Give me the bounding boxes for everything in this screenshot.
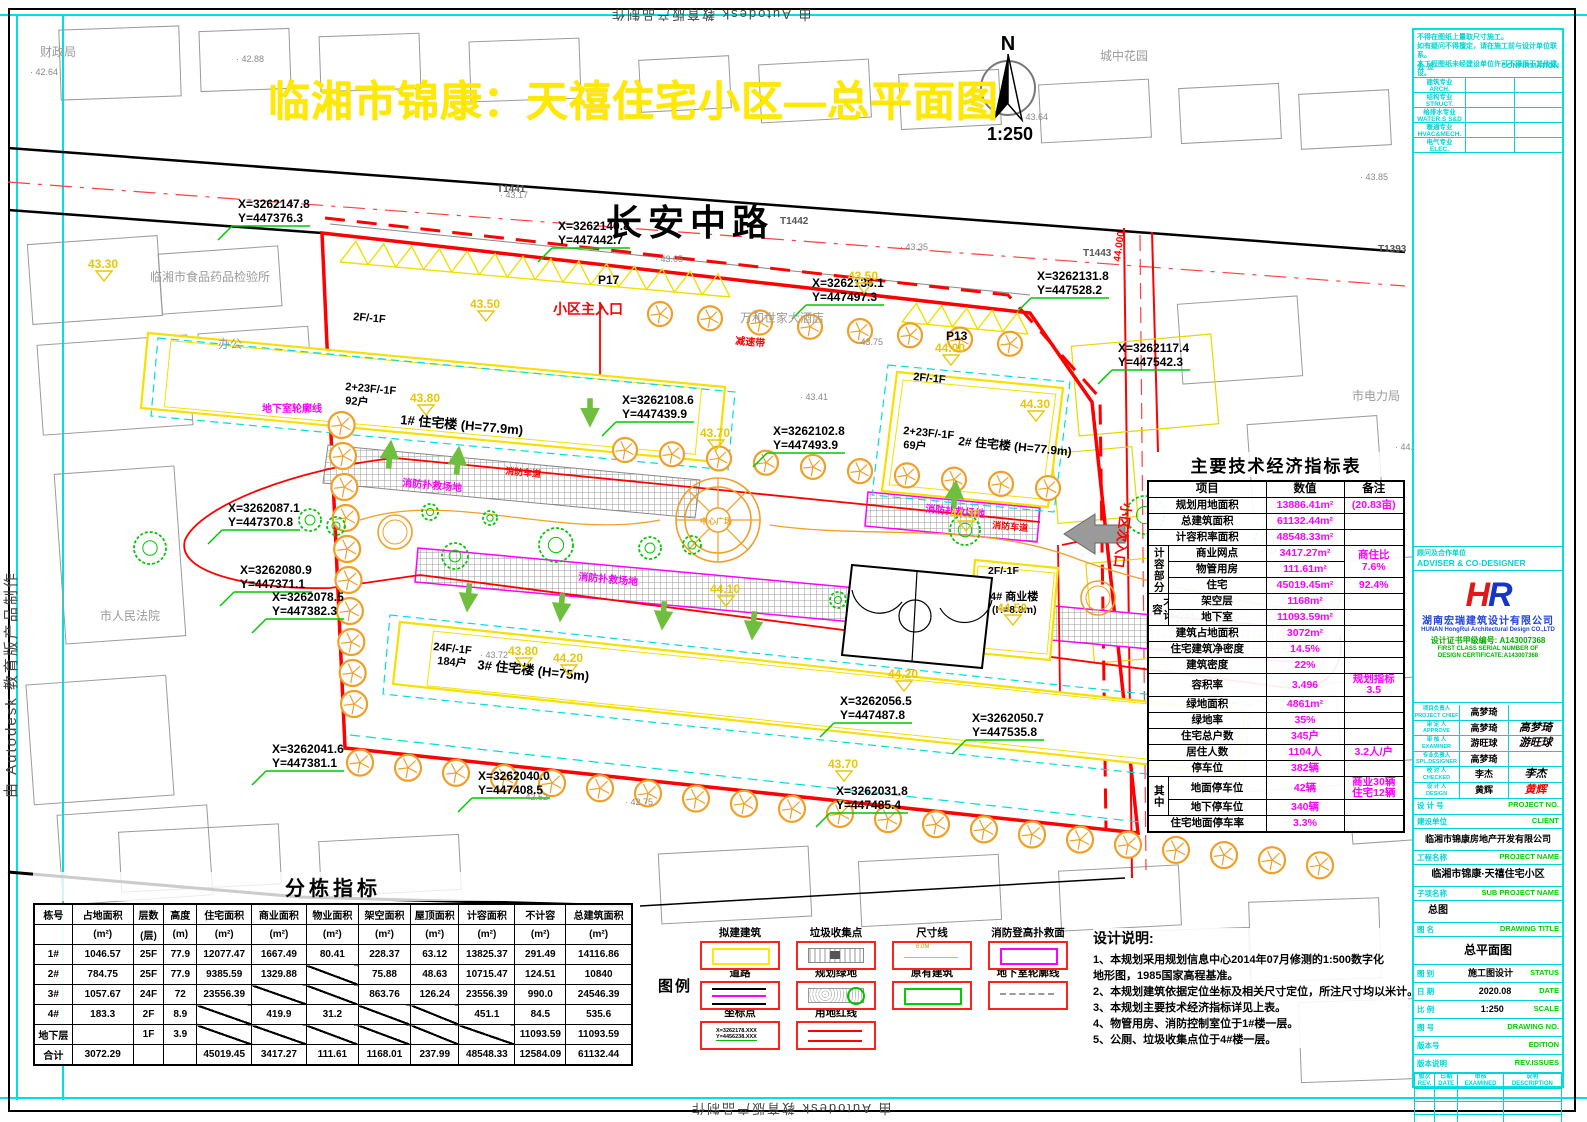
rev-en: EXAMINED — [1458, 1081, 1502, 1088]
legend-item-label: 拟建建筑 — [692, 925, 788, 940]
table-header-row: 栋号占地面积层数高度住宅面积商业面积物业面积架空面积屋顶面积计容面积不计容总建筑… — [34, 904, 632, 925]
signature: 游旺球 — [1509, 736, 1562, 751]
drawing-title: 图 名DRAWING TITLE — [1414, 923, 1562, 937]
table-cell: 124.51 — [515, 965, 566, 985]
tree-icon — [1019, 822, 1045, 848]
economic-table-title: 主要技术经济指标表 — [1147, 452, 1405, 477]
rev-en: REV. — [1415, 1081, 1434, 1088]
table-cell: 1F — [133, 1025, 164, 1045]
drawing-no-value — [1451, 1019, 1507, 1036]
drawing-no: 图 号DRAWING NO. — [1414, 1019, 1562, 1037]
green-tree-crown — [683, 536, 701, 554]
table-cell: 9385.59 — [197, 965, 252, 985]
table-cell: 61132.44m² — [1266, 514, 1344, 530]
tree-icon — [1307, 852, 1333, 878]
tree-icon — [998, 332, 1022, 356]
coordinate-y: Y=447371.1 — [240, 577, 305, 591]
revision-empty-cell — [1435, 1089, 1458, 1102]
legend-swatch-box: 6.0M — [892, 941, 972, 970]
legend-item-label: 垃圾收集点 — [788, 925, 884, 940]
column-unit: (m²) — [515, 925, 566, 945]
green-tree-core — [548, 537, 563, 552]
table-cell: 13825.37 — [459, 945, 515, 965]
column-unit: (m²) — [252, 925, 307, 945]
table-cell: 项目 — [1148, 481, 1266, 498]
table-cell: 2F — [133, 1005, 164, 1025]
elevation-value: 43.50 — [470, 297, 500, 311]
rev-zh: 日期 — [1435, 1074, 1457, 1081]
table-cell: 建筑密度 — [1148, 658, 1266, 674]
table-cell: 1057.67 — [72, 985, 133, 1005]
parking-zigzag — [340, 241, 730, 297]
revision-empty-cell — [1415, 1102, 1435, 1115]
coordinate-callout: X=3262040.0Y=447408.5 — [458, 769, 550, 812]
coordinate-x: X=3262108.6 — [622, 393, 694, 407]
tree-icon — [923, 811, 949, 837]
economic-indicators-table: 项目数值备注规划用地面积13886.41m²(20.83亩)总建筑面积61132… — [1147, 480, 1405, 833]
table-cell: 22% — [1266, 658, 1344, 674]
table-cell: 物管用房 — [1168, 562, 1266, 578]
discipline-sign-cell — [1466, 78, 1515, 92]
tree-icon — [648, 302, 672, 326]
column-header: 占地面积 — [72, 904, 133, 925]
table-cell: 住宅总户数 — [1148, 729, 1266, 745]
table-cell: 合计 — [34, 1045, 72, 1066]
table-cell: 126.24 — [411, 985, 459, 1005]
elevation-triangle — [836, 771, 852, 781]
elevation-marker: 44.00 — [935, 341, 965, 365]
surrounding-label: 临湘市食品药品检验所 — [150, 269, 270, 284]
table-cell: 80.41 — [306, 945, 358, 965]
road-mark-label: T1443 — [1083, 248, 1112, 259]
elevation-value: 44.30 — [950, 507, 980, 521]
elevation-value: 44.00 — [935, 341, 965, 355]
client-value: 临湘市锦康房地产开发有限公司 — [1414, 829, 1562, 851]
spot-elevation: · 42.64 — [30, 67, 58, 77]
table-cell: 商住比 7.6% — [1344, 546, 1404, 578]
main-entrance-label: 小区主入口 — [553, 301, 623, 317]
boundary-line — [640, 878, 1125, 906]
project-name: 工程名称PROJECT NAME — [1414, 851, 1562, 865]
table-cell: 990.0 — [515, 985, 566, 1005]
table-row: 2#784.7525F77.99385.591329.8875.8848.631… — [34, 965, 632, 985]
table-cell: 111.61m² — [1266, 562, 1344, 578]
coordinate-x: X=3262050.7 — [972, 711, 1044, 725]
table-cell — [459, 1025, 515, 1045]
revision-empty-cell — [1435, 1102, 1458, 1115]
table-cell — [252, 985, 307, 1005]
green-tree-core — [645, 543, 655, 553]
tree-icon — [801, 455, 825, 479]
column-header: 屋顶面积 — [411, 904, 459, 925]
table-row: 居住人数1104人3.2人/户 — [1148, 745, 1404, 761]
economic-indicators-panel: 主要技术经济指标表 项目数值备注规划用地面积13886.41m²(20.83亩)… — [1147, 452, 1405, 833]
signatory-row: 审 定 人APPROVE高梦琦高梦琦 — [1414, 721, 1562, 737]
tree-icon — [660, 442, 684, 466]
tree-icon — [341, 691, 367, 717]
table-cell: 419.9 — [252, 1005, 307, 1025]
elevation-value: 44.20 — [553, 651, 583, 665]
role-en: DESIGN — [1414, 791, 1459, 798]
column-unit: (m²) — [358, 925, 410, 945]
road-swatch-icon — [712, 988, 766, 1005]
edition-en: EDITION — [1529, 1037, 1562, 1054]
rev-en: DESCRIPTION — [1504, 1081, 1561, 1088]
table-cell: 计容部分 — [1148, 546, 1168, 594]
discipline-sign-cell — [1466, 123, 1515, 137]
table-cell: 住宅 — [1168, 578, 1266, 594]
project-name-value: 临湘市锦康·天禧住宅小区 — [1414, 865, 1562, 887]
table-cell: 35% — [1266, 713, 1344, 729]
revision-empty-cell — [1458, 1115, 1503, 1122]
coordinate-leader — [1098, 370, 1190, 384]
table-cell: 1104人 — [1266, 745, 1344, 761]
road-mark-label: T1393 — [1378, 244, 1407, 255]
design-note-line: 2、本规划建筑依据定位坐标及相关尺寸定位，所注尺寸均以米计。 — [1093, 984, 1408, 1000]
green-tree-icon — [639, 537, 661, 559]
table-row: 住宅建筑净密度14.5% — [1148, 642, 1404, 658]
client-zh: 建设单位 — [1417, 816, 1447, 827]
signatory-row: 设 计 人DESIGN黄辉黄辉 — [1414, 783, 1562, 799]
coordinate-x: X=3262041.6 — [272, 742, 344, 756]
dim-swatch-icon: 6.0M — [904, 948, 958, 958]
column-unit: (m²) — [306, 925, 358, 945]
table-cell: 3# — [34, 985, 72, 1005]
table-row: 容积率3.496规划指标3.5 — [1148, 674, 1404, 697]
parking-label: P17 — [598, 273, 620, 287]
legend-swatch-box — [700, 981, 780, 1010]
elevation-value: 43.80 — [410, 391, 440, 405]
group-label: 其中 — [1153, 785, 1164, 808]
table-cell — [411, 1025, 459, 1045]
green-tree-core — [305, 515, 315, 525]
surrounding-label: 城中花园 — [1100, 48, 1148, 63]
table-cell — [133, 1045, 164, 1066]
table-cell: 其中 — [1148, 777, 1168, 816]
bg-building-outline — [59, 26, 181, 100]
revision-empty-cell — [1458, 1089, 1503, 1102]
table-cell: 25F — [133, 945, 164, 965]
table-units-row: (m²)(层)(m)(m²)(m²)(m²)(m²)(m²)(m²)(m²)(m… — [34, 925, 632, 945]
table-cell: 规划指标3.5 — [1344, 674, 1404, 697]
bg-building-outline — [27, 236, 162, 325]
tree-icon — [898, 323, 922, 347]
drawing-no-zh: 图 号 — [1414, 1019, 1451, 1036]
table-cell: 10715.47 — [459, 965, 515, 985]
elevation-triangle — [96, 271, 112, 281]
signature: 高梦琦 — [1509, 721, 1562, 736]
table-cell: 77.9 — [164, 965, 197, 985]
table-cell — [1344, 610, 1404, 626]
table-cell: 停车位 — [1148, 761, 1266, 777]
revision-empty-cell — [1435, 1115, 1458, 1122]
discipline-sign-cell — [1466, 108, 1515, 122]
table-cell: 61132.44 — [566, 1045, 632, 1066]
signatory-role: 审 定 人APPROVE — [1414, 721, 1460, 736]
discipline-row: 暖通专业HVAC&MECH. — [1414, 123, 1562, 138]
discipline-en: ELEC. — [1414, 146, 1465, 153]
design-note-line: 4、物管用房、消防控制室位于1#楼一层。 — [1093, 1016, 1408, 1032]
table-cell: 75.88 — [358, 965, 410, 985]
spot-elevation: · 43.35 — [900, 242, 928, 252]
revision-empty-cell — [1503, 1115, 1561, 1122]
discipline-row: 结构专业STRUCT. — [1414, 93, 1562, 108]
bg-building-outline — [1059, 865, 1182, 931]
garbage-swatch-icon — [808, 948, 864, 963]
sub-project-zh: 子项名称 — [1417, 888, 1447, 899]
surrounding-label: 财政局 — [40, 45, 76, 59]
green-tree-core — [487, 515, 493, 521]
adviser-row: 顾问及合作单位ADVISER & CO-DESIGNER — [1414, 547, 1562, 571]
rev-issues-value — [1451, 1055, 1515, 1072]
group-label: 计容部分 — [1153, 547, 1164, 593]
signatory-name: 黄辉 — [1460, 783, 1509, 798]
surrounding-label: 市人民法院 — [100, 608, 160, 623]
discipline-row: 建筑专业ARCH. — [1414, 78, 1562, 93]
revision-header-row: 版次REV.日期DATE审核EXAMINED说明DESCRIPTION — [1415, 1074, 1562, 1089]
table-row: 合计3072.2945019.453417.27111.611168.01237… — [34, 1045, 632, 1066]
discipline-label: 建筑专业ARCH. — [1414, 78, 1466, 92]
table-cell: 45019.45 — [197, 1045, 252, 1066]
surrounding-label: 办公 — [218, 336, 242, 351]
firm-logo-h: H — [1465, 576, 1488, 614]
table-cell: 3072m² — [1266, 626, 1344, 642]
sub-project-en: SUB PROJECT NAME — [1481, 888, 1559, 899]
entrance-arrow-icon — [742, 610, 764, 641]
column-unit: (层) — [133, 925, 164, 945]
revision-empty-row — [1415, 1115, 1562, 1122]
signatory-name: 高梦琦 — [1460, 721, 1509, 736]
green-tree-crown — [483, 511, 497, 525]
coord-swatch-icon: X=3262178.XXX Y=4456238.XXX — [712, 1028, 766, 1041]
table-cell: 1667.49 — [252, 945, 307, 965]
table-cell — [1344, 816, 1404, 833]
table-row: 住宅总户数345户 — [1148, 729, 1404, 745]
tree-icon — [334, 536, 360, 562]
table-cell: 商业30辆 住宅12辆 — [1344, 777, 1404, 800]
table-cell: 4861m² — [1266, 697, 1344, 713]
legend-panel: 图例 拟建建筑垃圾收集点尺寸线6.0M消防登高扑救面道路规划绿地原有建筑地下室轮… — [658, 925, 1078, 1045]
design-firm-block: HR湖南宏瑞建筑设计有限公司HUNAN HongRui Architectura… — [1414, 578, 1562, 660]
legend-item: 垃圾收集点 — [788, 925, 884, 970]
table-cell: 3.9 — [164, 1025, 197, 1045]
coordinate-callout: X=3262117.4Y=447542.3 — [1098, 341, 1190, 384]
tree-icon — [848, 459, 872, 483]
building-table-title: 分栋指标 — [33, 872, 633, 901]
column-header: 物业面积 — [306, 904, 358, 925]
project-no-zh: 设 计 号 — [1417, 800, 1444, 813]
role-en: CHECKED — [1414, 775, 1459, 782]
signatory-name: 高梦琦 — [1460, 705, 1509, 720]
coordinate-leader — [252, 771, 344, 785]
basement-outline-label: 地下室轮廓线 — [262, 402, 322, 415]
rev-issues-en: REV.ISSUES — [1515, 1055, 1562, 1072]
scale-en: SCALE — [1534, 1001, 1562, 1018]
column-header: 总建筑面积 — [566, 904, 632, 925]
table-cell: 42辆 — [1266, 777, 1344, 800]
tree-icon — [347, 750, 373, 776]
bg-building-outline — [1299, 90, 1392, 150]
coordinate-x: X=3262031.8 — [836, 784, 908, 798]
tree-icon — [330, 443, 356, 469]
column-header: 计容面积 — [459, 904, 515, 925]
elevation-value: 43.50 — [848, 269, 878, 283]
signatory-row: 审 核 人EXAMINER游旺球游旺球 — [1414, 736, 1562, 752]
status-zh: 图 别 — [1414, 965, 1451, 982]
table-cell: 14116.86 — [566, 945, 632, 965]
date-zh: 日 期 — [1414, 983, 1451, 1000]
elevation-marker: 43.50 — [470, 297, 500, 321]
firm-name: 湖南宏瑞建筑设计有限公司 — [1414, 612, 1562, 627]
coordinate-y: Y=447493.9 — [773, 438, 838, 452]
discipline-date-cell — [1515, 93, 1562, 107]
table-cell: 4# — [34, 1005, 72, 1025]
table-cell: 784.75 — [72, 965, 133, 985]
table-cell: 商业网点 — [1168, 546, 1266, 562]
firm-certificate-en1: FIRST CLASS SERIAL NUMBER OF — [1414, 646, 1562, 653]
table-cell: 1329.88 — [252, 965, 307, 985]
elevation-value: 44.30 — [1020, 397, 1050, 411]
table-cell: 11093.59 — [515, 1025, 566, 1045]
project-no: 设 计 号PROJECT NO. — [1414, 799, 1562, 815]
green-tree-core — [688, 541, 696, 549]
legend-swatch-box — [892, 981, 972, 1010]
basement-swatch-icon — [1000, 993, 1054, 995]
column-unit: (m) — [164, 925, 197, 945]
revision-empty-cell — [1503, 1102, 1561, 1115]
tree-icon — [779, 796, 805, 822]
coordinate-y: Y=447528.2 — [1037, 283, 1102, 297]
revision-table: 版次REV.日期DATE审核EXAMINED说明DESCRIPTION — [1414, 1073, 1562, 1122]
discipline-sign-cell — [1466, 93, 1515, 107]
revision-table-grid: 版次REV.日期DATE审核EXAMINED说明DESCRIPTION — [1414, 1073, 1562, 1122]
table-cell: 11093.59m² — [1266, 610, 1344, 626]
legend-swatch-box — [988, 941, 1068, 970]
building4-podium: 2F/-1F — [988, 565, 1020, 577]
table-cell: 451.1 — [459, 1005, 515, 1025]
firm-certificate-en2: DESIGN CERTIFICATE:A143007368 — [1414, 653, 1562, 660]
green-swatch-icon — [808, 988, 864, 1003]
table-row: 总建筑面积61132.44m² — [1148, 514, 1404, 530]
role-en: APPROVE — [1414, 728, 1459, 735]
discipline-en: WATER.S S&D — [1414, 116, 1465, 123]
discipline-row: 电气专业ELEC. — [1414, 138, 1562, 153]
plaza-label: 中心广场 — [700, 516, 732, 526]
table-cell: 84.5 — [515, 1005, 566, 1025]
table-cell: 绿地面积 — [1148, 697, 1266, 713]
spot-elevation: · 43.05 — [655, 254, 683, 264]
role-en: SPL.DESIGNER — [1414, 759, 1459, 766]
coordinate-y: Y=447370.8 — [228, 515, 293, 529]
elevation-marker: 43.70 — [828, 757, 858, 781]
signatory-role: 项目负责人PROJECT CHIEF — [1414, 705, 1460, 720]
coordinate-x: X=3262102.8 — [773, 424, 845, 438]
green-tree-crown — [639, 537, 661, 559]
signatory-role: 专业负责人SPL.DESIGNER — [1414, 752, 1460, 767]
project-name-text: 临湘市锦康·天禧住宅小区 — [1414, 865, 1562, 885]
spot-elevation: · 43.85 — [1360, 172, 1388, 182]
pavilion-circle — [383, 520, 407, 544]
sub-project: 子项名称SUB PROJECT NAME — [1414, 887, 1562, 901]
tree-icon — [443, 760, 469, 786]
discipline-zh: 结构专业 — [1414, 94, 1465, 101]
table-cell: 23556.39 — [197, 985, 252, 1005]
table-cell: 3.3% — [1266, 816, 1344, 833]
tree-icon — [1036, 476, 1060, 500]
green-tree-core — [143, 541, 157, 555]
discipline-en: ARCH. — [1414, 86, 1465, 93]
title-block: 不得在图纸上量取尺寸施工。如有疑问不得擅定，请在施工前与设计单位联系。本工程图纸… — [1412, 28, 1564, 1088]
table-cell — [1344, 729, 1404, 745]
green-tree-crown — [134, 532, 166, 564]
discipline-zh: 暖通专业 — [1414, 124, 1465, 131]
client-name: 临湘市锦康房地产开发有限公司 — [1414, 829, 1562, 849]
dim-note: 6.0M — [916, 944, 929, 950]
table-cell: 12077.47 — [197, 945, 252, 965]
bg-building-outline — [1177, 296, 1302, 384]
road-mark-label: T1442 — [780, 216, 809, 227]
tree-icon — [707, 446, 731, 470]
spot-elevation: · 43.75 — [855, 337, 883, 347]
column-header: 高度 — [164, 904, 197, 925]
coordinate-y: Y=447376.3 — [238, 211, 303, 225]
legend-item: 拟建建筑 — [692, 925, 788, 970]
signatory-name: 李杰 — [1460, 767, 1509, 782]
table-row: 1#1046.5725F77.912077.471667.4980.41228.… — [34, 945, 632, 965]
discipline-zh: 建筑专业 — [1414, 79, 1465, 86]
table-cell: 111.61 — [306, 1045, 358, 1066]
table-cell: 8.9 — [164, 1005, 197, 1025]
table-cell: 345户 — [1266, 729, 1344, 745]
table-cell: 地下室 — [1168, 610, 1266, 626]
tree-icon — [338, 629, 364, 655]
client: 建设单位CLIENT — [1414, 815, 1562, 829]
side-road-centerline — [1140, 235, 1146, 870]
table-cell: 72 — [164, 985, 197, 1005]
discipline-label: 暖通专业HVAC&MECH. — [1414, 123, 1466, 137]
green-tree-icon — [134, 532, 166, 564]
tree-icon — [1067, 827, 1093, 853]
status-value: 施工图设计 — [1451, 965, 1530, 982]
drawing-title-value: 总平面图 — [1414, 937, 1562, 965]
date: 日 期2020.08DATE — [1414, 983, 1562, 1001]
revision-empty-cell — [1415, 1115, 1435, 1122]
signatory-name: 游旺球 — [1460, 736, 1509, 751]
revision-header-cell: 日期DATE — [1435, 1074, 1458, 1089]
table-cell: 1168.01 — [358, 1045, 410, 1066]
table-cell: 863.76 — [358, 985, 410, 1005]
project-no-en: PROJECT NO. — [1508, 800, 1559, 813]
green-tree-icon — [683, 536, 701, 554]
table-cell — [1344, 514, 1404, 530]
rev-issues: 版本说明REV.ISSUES — [1414, 1055, 1562, 1073]
table-cell — [306, 985, 358, 1005]
table-cell — [306, 1025, 358, 1045]
table-cell: 291.49 — [515, 945, 566, 965]
coordinate-callout: X=3262147.8Y=447376.3 — [218, 197, 310, 240]
table-cell — [358, 1025, 410, 1045]
table-cell — [197, 1005, 252, 1025]
table-cell: 1168m² — [1266, 594, 1344, 610]
table-row: 地下室11093.59m² — [1148, 610, 1404, 626]
table-cell: 建筑占地面积 — [1148, 626, 1266, 642]
signatory-role: 审 核 人EXAMINER — [1414, 736, 1460, 751]
table-cell: 340辆 — [1266, 800, 1344, 816]
table-cell — [1344, 530, 1404, 546]
table-cell: 地下停车位 — [1168, 800, 1266, 816]
site-plan-sheet: X=3262147.8Y=447376.3X=3262140.8Y=447442… — [0, 0, 1587, 1122]
tree-icon — [895, 463, 919, 487]
